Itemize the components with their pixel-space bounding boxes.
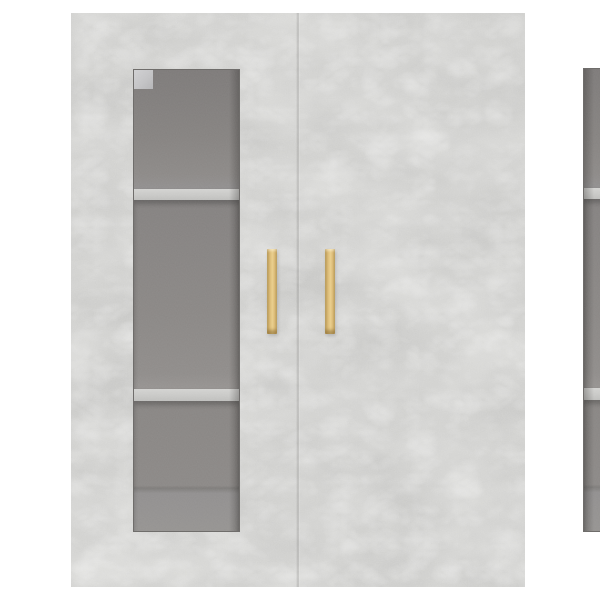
glass-panel-left xyxy=(133,69,240,532)
cabinet xyxy=(71,13,525,587)
compartment-top-right xyxy=(584,69,600,188)
cabinet-door-left xyxy=(71,13,298,587)
compartment-middle-right xyxy=(584,199,600,388)
shelf-upper-left xyxy=(134,189,239,200)
product-photo xyxy=(0,0,600,600)
glass-panel-right xyxy=(583,68,600,532)
compartment-bottom-right xyxy=(584,400,600,532)
cabinet-door-right xyxy=(298,13,525,587)
door-handle-right xyxy=(325,249,335,334)
glass-reflection-corner-left xyxy=(134,70,153,89)
compartment-bottom-left xyxy=(134,401,239,532)
door-seam xyxy=(296,13,300,587)
shelf-lower-left xyxy=(134,389,239,401)
door-handle-left xyxy=(267,249,277,334)
shelf-lower-right xyxy=(584,388,600,400)
compartment-middle-left xyxy=(134,200,239,389)
shelf-upper-right xyxy=(584,188,600,199)
